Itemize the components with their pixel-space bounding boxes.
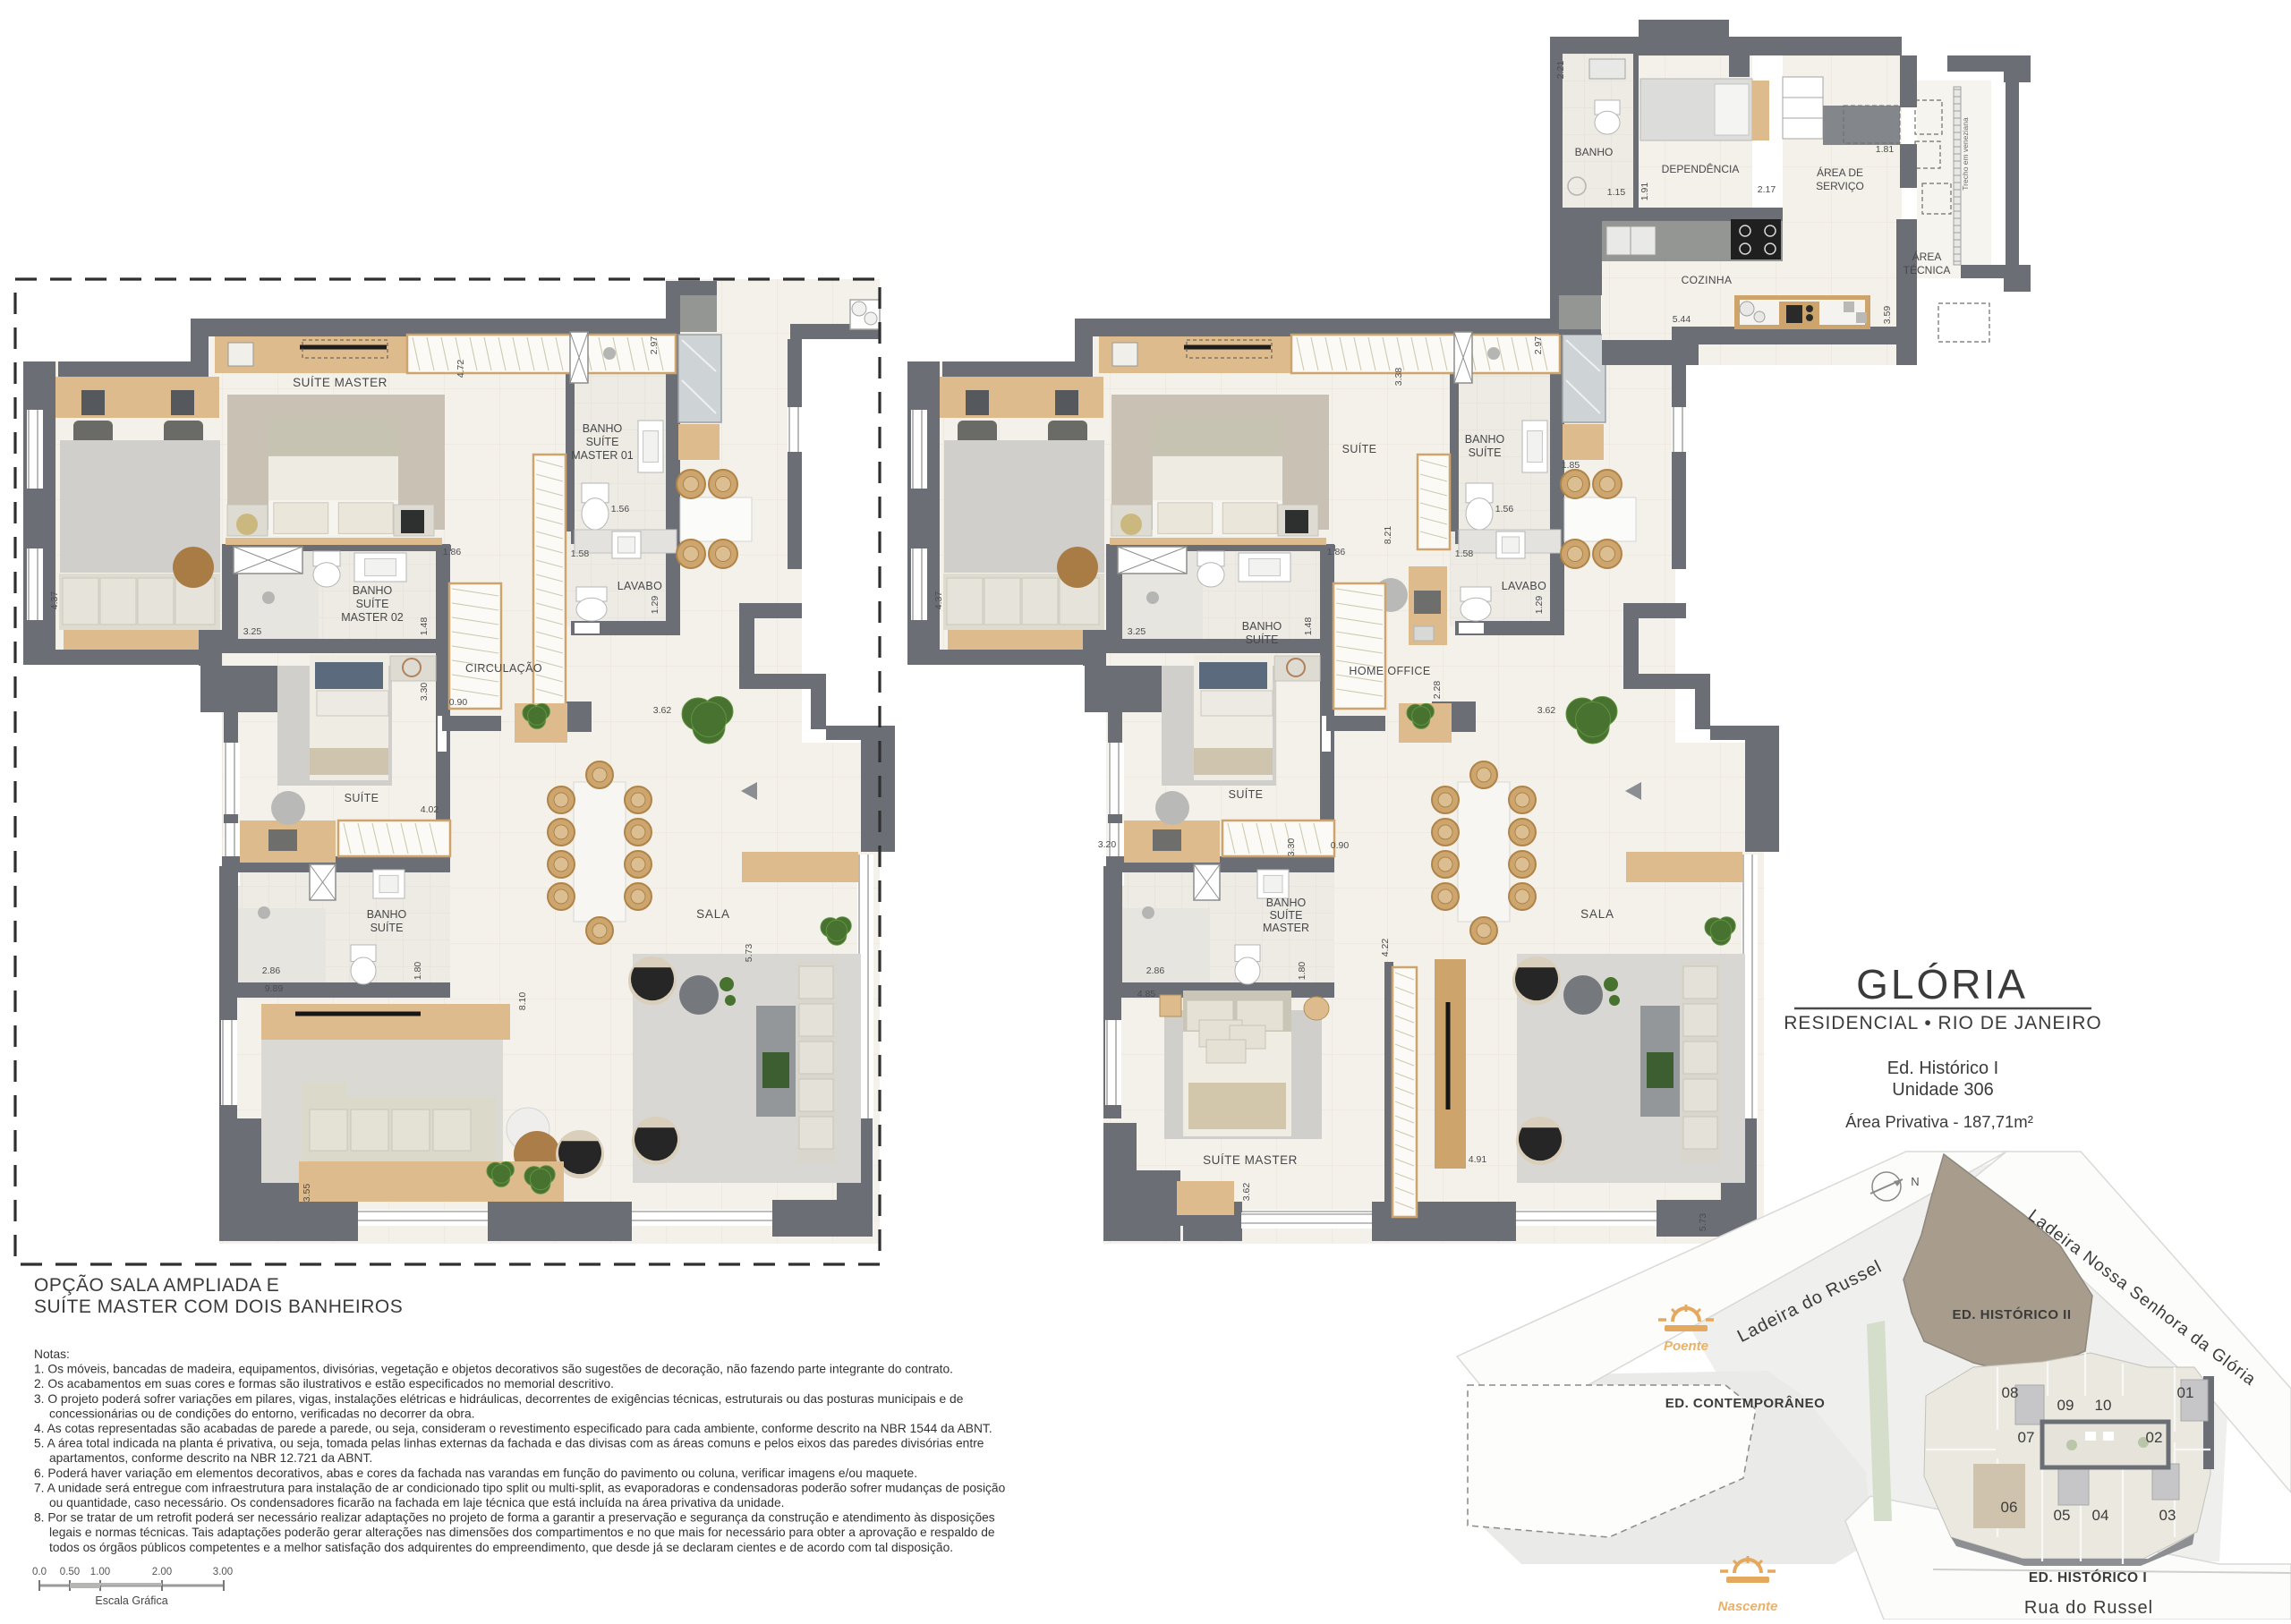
svg-text:LAVABO: LAVABO: [617, 580, 663, 592]
svg-text:4.85: 4.85: [1137, 989, 1156, 999]
svg-text:ED. HISTÓRICO II: ED. HISTÓRICO II: [1952, 1306, 2071, 1322]
svg-text:5.44: 5.44: [1673, 314, 1691, 325]
svg-text:concessionárias ou de condiçõe: concessionárias ou de condições do entor…: [49, 1407, 475, 1420]
svg-text:3.00: 3.00: [213, 1567, 233, 1577]
svg-text:1.86: 1.86: [1327, 547, 1346, 557]
svg-text:2.28: 2.28: [1432, 681, 1443, 700]
svg-text:Trecho em veneziana: Trecho em veneziana: [1961, 117, 1970, 191]
svg-text:07: 07: [2018, 1429, 2035, 1446]
svg-text:0.50: 0.50: [60, 1567, 80, 1577]
svg-text:ÁREA: ÁREA: [1912, 250, 1942, 263]
svg-text:HOME OFFICE: HOME OFFICE: [1349, 665, 1430, 677]
svg-text:SALA: SALA: [1580, 907, 1614, 921]
svg-text:SUÍTE: SUÍTE: [1342, 442, 1377, 455]
svg-text:0.90: 0.90: [449, 697, 468, 708]
svg-text:1.91: 1.91: [1639, 183, 1650, 201]
svg-text:3.25: 3.25: [243, 626, 262, 637]
svg-text:1.00: 1.00: [90, 1567, 110, 1577]
svg-text:SUÍTE: SUÍTE: [1229, 787, 1264, 801]
svg-text:1.29: 1.29: [1534, 596, 1545, 615]
svg-text:8.21: 8.21: [1383, 526, 1393, 545]
svg-text:1.81: 1.81: [1876, 144, 1895, 155]
svg-text:BANHO: BANHO: [1242, 620, 1282, 633]
svg-text:03: 03: [2159, 1507, 2176, 1524]
svg-text:Nascente: Nascente: [1718, 1599, 1778, 1614]
svg-text:CIRCULAÇÃO: CIRCULAÇÃO: [465, 662, 542, 675]
svg-text:1.85: 1.85: [1562, 460, 1580, 471]
svg-text:3.30: 3.30: [419, 683, 430, 701]
svg-text:GLÓRIA: GLÓRIA: [1856, 961, 2028, 1008]
svg-text:apartamentos, conforme descrit: apartamentos, conforme descrito na NBR 1…: [49, 1451, 372, 1465]
svg-text:SUÍTE: SUÍTE: [1270, 908, 1303, 922]
svg-text:BANHO: BANHO: [1575, 146, 1614, 158]
svg-text:5.73: 5.73: [1698, 1213, 1708, 1232]
svg-text:8.10: 8.10: [517, 992, 528, 1011]
svg-text:SUÍTE: SUÍTE: [345, 791, 379, 804]
svg-text:SUÍTE: SUÍTE: [370, 921, 404, 934]
svg-text:Ed. Histórico I: Ed. Histórico I: [1887, 1059, 1998, 1078]
svg-text:ED. HISTÓRICO I: ED. HISTÓRICO I: [2029, 1569, 2147, 1586]
svg-text:Notas:: Notas:: [34, 1348, 70, 1361]
svg-text:ED. CONTEMPORÂNEO: ED. CONTEMPORÂNEO: [1665, 1395, 1826, 1411]
svg-text:4.37: 4.37: [933, 591, 944, 610]
svg-text:3. O projeto poderá sofrer var: 3. O projeto poderá sofrer variações em …: [34, 1392, 964, 1406]
svg-text:09: 09: [2057, 1397, 2074, 1414]
svg-text:SALA: SALA: [696, 907, 730, 921]
svg-text:BANHO: BANHO: [583, 422, 623, 435]
svg-text:8. Por se tratar de um retrofi: 8. Por se tratar de um retrofit poderá s…: [34, 1511, 995, 1525]
svg-text:SUÍTE MASTER COM DOIS BANHEIRO: SUÍTE MASTER COM DOIS BANHEIROS: [34, 1297, 403, 1317]
svg-text:3.59: 3.59: [1882, 306, 1893, 325]
svg-text:todos os órgãos públicos compe: todos os órgãos públicos competentes e a…: [49, 1541, 953, 1554]
svg-text:3.55: 3.55: [302, 1184, 312, 1203]
svg-text:1. Os móveis, bancadas de made: 1. Os móveis, bancadas de madeira, equip…: [34, 1363, 953, 1376]
svg-text:SERVIÇO: SERVIÇO: [1816, 180, 1864, 192]
svg-text:2.00: 2.00: [152, 1567, 172, 1577]
svg-text:SUÍTE: SUÍTE: [356, 597, 389, 610]
svg-text:05: 05: [2054, 1507, 2071, 1524]
svg-text:2. Os acabamentos em suas core: 2. Os acabamentos em suas cores e formas…: [34, 1377, 614, 1390]
svg-text:TÉCNICA: TÉCNICA: [1903, 263, 1951, 276]
svg-text:3.62: 3.62: [1537, 705, 1556, 716]
svg-text:SUÍTE: SUÍTE: [586, 435, 619, 448]
svg-text:1.56: 1.56: [611, 504, 630, 514]
svg-text:0.0: 0.0: [32, 1567, 47, 1577]
svg-text:COZINHA: COZINHA: [1682, 274, 1733, 286]
svg-text:7. A unidade será entregue com: 7. A unidade será entregue com infraestr…: [34, 1481, 1006, 1494]
svg-text:ÁREA DE: ÁREA DE: [1817, 166, 1863, 179]
svg-text:BANHO: BANHO: [367, 908, 407, 921]
svg-text:10: 10: [2095, 1397, 2112, 1414]
svg-text:ou quantidade, caso necessário: ou quantidade, caso necessário. Os conde…: [49, 1496, 784, 1509]
svg-text:Rua do Russel: Rua do Russel: [2024, 1598, 2153, 1618]
svg-text:BANHO: BANHO: [1266, 897, 1307, 909]
svg-text:2.97: 2.97: [649, 336, 660, 355]
svg-text:Poente: Poente: [1664, 1339, 1708, 1354]
svg-text:SUÍTE: SUÍTE: [1246, 633, 1279, 646]
svg-text:1.15: 1.15: [1607, 187, 1626, 198]
svg-text:2.86: 2.86: [262, 965, 281, 976]
svg-text:MASTER 01: MASTER 01: [571, 449, 634, 462]
svg-text:1.48: 1.48: [1303, 617, 1314, 636]
svg-text:1.48: 1.48: [419, 617, 430, 636]
svg-text:4.37: 4.37: [49, 591, 60, 610]
svg-text:4.91: 4.91: [1469, 1154, 1487, 1165]
svg-text:01: 01: [2177, 1384, 2194, 1401]
svg-text:RESIDENCIAL • RIO DE JANEIRO: RESIDENCIAL • RIO DE JANEIRO: [1784, 1013, 2101, 1033]
svg-text:3.62: 3.62: [653, 705, 672, 716]
svg-text:N: N: [1911, 1175, 1919, 1188]
svg-text:3.20: 3.20: [1098, 839, 1117, 850]
svg-text:1.80: 1.80: [413, 962, 423, 981]
svg-text:BANHO: BANHO: [1465, 433, 1505, 446]
svg-text:3.38: 3.38: [1393, 368, 1404, 387]
svg-text:3.30: 3.30: [1286, 838, 1297, 857]
svg-text:9.89: 9.89: [265, 983, 284, 994]
svg-text:BANHO: BANHO: [353, 584, 393, 597]
svg-text:2.97: 2.97: [1533, 336, 1544, 355]
svg-text:06: 06: [2001, 1499, 2018, 1516]
svg-text:SUÍTE MASTER: SUÍTE MASTER: [293, 376, 388, 389]
svg-text:0.90: 0.90: [1331, 840, 1350, 851]
svg-text:OPÇÃO SALA AMPLIADA E: OPÇÃO SALA AMPLIADA E: [34, 1274, 279, 1296]
svg-text:1.56: 1.56: [1495, 504, 1514, 514]
svg-text:1.80: 1.80: [1297, 962, 1307, 981]
svg-text:5. A área total indicada na pl: 5. A área total indicada na planta é pri…: [34, 1437, 984, 1450]
svg-text:SUÍTE: SUÍTE: [1469, 446, 1502, 459]
svg-text:LAVABO: LAVABO: [1502, 580, 1547, 592]
svg-text:4.72: 4.72: [456, 360, 466, 378]
svg-text:3.25: 3.25: [1128, 626, 1146, 637]
svg-text:2.86: 2.86: [1146, 965, 1165, 976]
svg-text:1.58: 1.58: [1455, 548, 1474, 559]
svg-text:3.62: 3.62: [1241, 1183, 1252, 1202]
svg-text:legais e normas técnicas. Tais: legais e normas técnicas. Tais adaptaçõe…: [49, 1526, 995, 1539]
svg-text:04: 04: [2092, 1507, 2109, 1524]
svg-text:1.58: 1.58: [571, 548, 590, 559]
svg-text:02: 02: [2146, 1429, 2163, 1446]
svg-text:4. As cotas representadas são: 4. As cotas representadas são acabadas d…: [34, 1422, 992, 1435]
svg-text:2.17: 2.17: [1758, 184, 1776, 195]
svg-text:2.21: 2.21: [1555, 61, 1566, 80]
svg-text:08: 08: [2002, 1384, 2019, 1401]
svg-text:Área Privativa - 187,71m²: Área Privativa - 187,71m²: [1845, 1112, 2033, 1131]
svg-text:4.02: 4.02: [421, 804, 439, 815]
svg-text:5.73: 5.73: [744, 944, 754, 963]
svg-text:DEPENDÊNCIA: DEPENDÊNCIA: [1662, 162, 1740, 175]
svg-text:Unidade 306: Unidade 306: [1892, 1080, 1993, 1100]
svg-text:SUÍTE MASTER: SUÍTE MASTER: [1203, 1153, 1298, 1167]
svg-text:4.22: 4.22: [1380, 939, 1391, 957]
svg-text:1.86: 1.86: [443, 547, 462, 557]
svg-text:MASTER 02: MASTER 02: [341, 611, 404, 624]
svg-text:6. Poderá haver variação em el: 6. Poderá haver variação em elementos de…: [34, 1467, 917, 1480]
svg-text:1.29: 1.29: [650, 596, 660, 615]
svg-text:MASTER: MASTER: [1263, 922, 1309, 934]
svg-text:Escala Gráfica: Escala Gráfica: [95, 1594, 167, 1607]
